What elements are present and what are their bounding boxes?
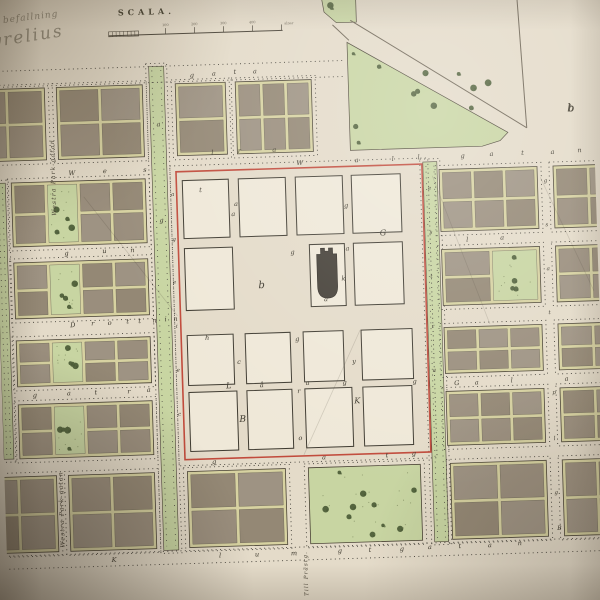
map-letter: n	[173, 315, 177, 323]
planned-block	[238, 177, 287, 236]
map-letter: a	[355, 156, 359, 164]
building-lot	[238, 472, 283, 507]
map-letter: a	[156, 120, 160, 128]
building-lot	[61, 124, 100, 156]
building-lot	[474, 171, 503, 198]
park-block	[308, 464, 422, 543]
map-letter: r	[297, 387, 301, 395]
building-lot	[22, 432, 52, 455]
map-letter: t	[521, 149, 524, 157]
scale-tick-label: 200	[191, 22, 198, 26]
map-letter: l	[466, 236, 468, 244]
building-lot	[500, 464, 544, 499]
building-lot	[73, 514, 112, 548]
map-letter: K	[111, 556, 118, 564]
corner-letter-b: b	[567, 101, 574, 114]
tree	[422, 70, 428, 76]
building-lot	[447, 330, 476, 349]
building-lot	[454, 465, 498, 500]
street-dots	[0, 550, 600, 570]
building-lot	[559, 248, 590, 272]
building-lot	[445, 251, 490, 276]
scale-tick-label: 100	[162, 23, 169, 27]
building-lot	[82, 263, 112, 287]
map-letter: a	[234, 200, 238, 208]
building-lot	[510, 328, 539, 347]
building-lot	[113, 476, 152, 510]
planned-block	[305, 387, 354, 447]
building-lot	[561, 326, 592, 345]
map-letter: l	[511, 376, 513, 384]
building-lot	[87, 405, 117, 428]
building-lot	[86, 362, 116, 381]
map-letter: a	[345, 244, 349, 252]
map-letter: a	[171, 192, 174, 198]
building-lot	[450, 419, 479, 442]
map-letter: L	[225, 381, 232, 390]
building-lot	[72, 477, 111, 511]
map-letter: g	[212, 458, 216, 466]
building-lot	[85, 341, 115, 360]
building-lot	[482, 418, 511, 441]
map-letter: l	[554, 436, 556, 442]
planned-block	[245, 332, 292, 383]
map-letter: a	[306, 379, 310, 387]
map-letter: s	[430, 230, 433, 236]
building-lot	[15, 216, 45, 244]
building-lot	[22, 407, 52, 430]
building-lot	[0, 92, 6, 124]
planned-block	[187, 334, 235, 385]
map-letter: m	[291, 549, 297, 557]
map-letter: K	[353, 396, 361, 405]
map-letter: G	[380, 228, 387, 237]
planned-block	[247, 389, 294, 449]
map-letter: a	[489, 150, 493, 158]
map-letter: e	[176, 368, 180, 374]
building-lot	[113, 182, 143, 210]
building-lot	[455, 501, 499, 536]
building-lot	[180, 120, 225, 153]
map-letter: o	[108, 319, 112, 327]
map-photo: 100200300400alnargataWallgatanWeslragunl…	[0, 0, 600, 600]
map-letter: a	[147, 386, 151, 394]
map-letter: u	[255, 550, 259, 558]
building-lot	[118, 340, 148, 359]
building-lot	[20, 343, 50, 362]
map-letter: l	[417, 153, 419, 161]
map-letter: u	[102, 247, 106, 255]
map-letter: t	[458, 542, 461, 550]
building-lot	[591, 196, 600, 223]
building-lot	[239, 508, 284, 543]
building-lot	[263, 84, 285, 116]
map-letter: k	[341, 275, 345, 283]
building-lot	[18, 292, 48, 316]
building-lot	[20, 364, 50, 383]
map-letter: g	[190, 71, 194, 79]
map-letter: s	[545, 222, 548, 228]
building-lot	[590, 167, 600, 194]
building-lot	[567, 498, 598, 532]
tree	[485, 79, 492, 86]
map-letter: a	[565, 375, 569, 383]
map-letter: g	[295, 335, 299, 343]
building-lot	[192, 510, 237, 545]
building-lot	[475, 200, 504, 227]
planned-block	[363, 386, 414, 447]
map-letter: r	[432, 324, 435, 330]
boundary-line	[517, 0, 527, 128]
map-letter: a	[428, 543, 432, 551]
map-letter: n	[152, 316, 156, 324]
tree	[470, 84, 477, 91]
building-lot	[556, 168, 587, 195]
building-lot	[557, 198, 588, 225]
scale-tick-label: 400	[249, 20, 256, 24]
building-lot	[563, 390, 594, 413]
building-lot	[60, 89, 99, 121]
building-lot	[21, 515, 55, 549]
map-letter: g	[64, 249, 68, 257]
map-letter: l	[219, 552, 221, 560]
map-letter: a	[488, 541, 492, 549]
map-letter: b	[258, 280, 265, 291]
map-letter: a	[253, 67, 257, 75]
map-letter: å	[260, 380, 264, 389]
building-lot	[15, 185, 45, 213]
building-lot	[238, 84, 260, 116]
building-lot	[564, 415, 595, 438]
building-lot	[9, 126, 43, 158]
map-letter: i	[176, 324, 178, 330]
map-letter: n	[518, 539, 522, 547]
boundary-line	[332, 24, 348, 40]
map-letter: a	[433, 368, 436, 374]
planned-block	[353, 242, 404, 306]
map-letter: g	[412, 449, 416, 457]
map-letter: W	[296, 159, 304, 167]
building-lot	[595, 346, 600, 365]
building-lot	[448, 351, 477, 370]
map-letter: e	[103, 167, 107, 175]
building-lot	[20, 479, 54, 513]
building-lot	[120, 404, 150, 427]
scale-tick-label: 300	[220, 21, 227, 25]
map-letter: i	[164, 315, 166, 323]
building-lot	[481, 393, 510, 416]
building-lot	[513, 417, 542, 440]
map-letter: c	[178, 412, 181, 418]
building-lot	[560, 274, 591, 298]
map-letter: o	[298, 434, 302, 442]
church-building	[316, 248, 338, 299]
map-letter: t	[233, 68, 236, 76]
triangle-park	[347, 37, 508, 150]
map-letter: g	[412, 377, 416, 385]
building-lot	[442, 172, 471, 199]
park-lot	[50, 264, 81, 315]
map-letter: B	[556, 525, 562, 532]
map-letter: t	[548, 310, 551, 316]
planned-block	[184, 247, 234, 310]
building-lot	[449, 394, 478, 417]
map-letter: g	[400, 545, 404, 553]
building-lot	[101, 88, 140, 120]
map-letter: t	[126, 317, 129, 325]
building-lot	[593, 273, 600, 297]
building-lot	[83, 289, 113, 313]
building-lot	[511, 349, 540, 368]
building-lot	[0, 480, 18, 514]
planned-block	[361, 328, 414, 380]
building-lot	[505, 170, 534, 197]
map-letter: a	[475, 378, 479, 386]
building-lot	[115, 262, 145, 286]
building-lot	[0, 127, 7, 159]
town-plan-drawing: 100200300400alnargataWallgatanWeslragunl…	[0, 0, 600, 600]
map-letter: W	[68, 169, 76, 177]
building-lot	[506, 199, 535, 226]
map-letter: G	[454, 379, 459, 387]
building-lot	[595, 325, 600, 344]
planned-block	[295, 176, 344, 235]
building-lot	[566, 462, 597, 496]
map-letter: c	[237, 358, 241, 366]
building-lot	[480, 350, 509, 369]
building-lot	[81, 213, 111, 241]
building-lot	[0, 517, 19, 551]
map-letter: g	[159, 216, 163, 224]
map-letter: g	[290, 248, 294, 256]
map-letter: n	[577, 146, 581, 154]
map-letter: a	[550, 148, 554, 156]
planned-block	[303, 331, 345, 382]
building-lot	[120, 429, 150, 452]
map-letter: t	[369, 546, 372, 554]
map-letter: g	[338, 547, 342, 555]
building-lot	[88, 430, 118, 453]
map-letter: e	[173, 280, 177, 286]
map-letter: g	[344, 201, 348, 209]
map-letter: g	[172, 237, 176, 243]
map-letter: h	[205, 334, 209, 342]
map-letter: a	[324, 295, 328, 303]
map-letter: a	[546, 266, 549, 272]
building-lot	[102, 123, 141, 155]
map-sheet: 100200300400alnargataWallgatanWeslragunl…	[0, 0, 600, 600]
scale-title: SCALA.	[118, 6, 175, 18]
building-lot	[191, 473, 236, 508]
building-lot	[446, 278, 491, 303]
map-letter: y	[351, 357, 356, 365]
map-letter: a	[272, 146, 276, 154]
scale-unit: alnar	[284, 21, 293, 25]
building-lot	[114, 512, 153, 546]
map-letter: a	[322, 453, 326, 461]
building-lot	[17, 265, 47, 289]
map-letter: l	[211, 149, 213, 157]
building-lot	[287, 83, 309, 115]
map-letter: B	[238, 415, 246, 425]
triangle-park	[322, 0, 357, 23]
map-letter: g	[342, 379, 346, 387]
map-letter: a	[67, 389, 71, 397]
map-letter: r	[127, 387, 131, 395]
building-lot	[114, 212, 144, 240]
map-letter: p	[552, 390, 556, 396]
map-letter: g	[460, 152, 464, 160]
map-letter: g	[544, 178, 548, 184]
planned-block	[189, 391, 239, 451]
map-letter: a	[212, 70, 216, 78]
map-letter: t	[138, 317, 141, 325]
map-letter: a	[500, 234, 504, 242]
street-dots	[0, 60, 344, 72]
building-lot	[562, 347, 593, 366]
planned-block	[182, 179, 230, 238]
map-letter: D	[69, 321, 76, 329]
map-letter: n	[130, 246, 134, 254]
map-letter: l	[392, 155, 394, 163]
map-letter: s	[143, 166, 147, 174]
building-lot	[116, 288, 146, 312]
map-letter: g	[554, 490, 558, 496]
building-lot	[179, 86, 224, 119]
map-letter: a	[231, 210, 235, 218]
building-lot	[479, 329, 508, 348]
map-letter: t	[94, 388, 97, 396]
building-lot	[8, 91, 42, 123]
street-name-label: Westra Park-gatan	[57, 471, 66, 548]
building-lot	[288, 117, 310, 149]
building-lot	[240, 119, 262, 151]
street-name-label: Westra Park-gatan	[49, 139, 58, 216]
street-name-label: Till Prästg.	[303, 551, 310, 596]
building-lot	[512, 392, 541, 415]
planned-block	[351, 174, 402, 234]
building-lot	[118, 361, 148, 380]
building-lot	[592, 247, 600, 271]
map-letter: g	[33, 391, 37, 399]
building-lot	[501, 500, 545, 535]
building-lot	[597, 389, 600, 412]
